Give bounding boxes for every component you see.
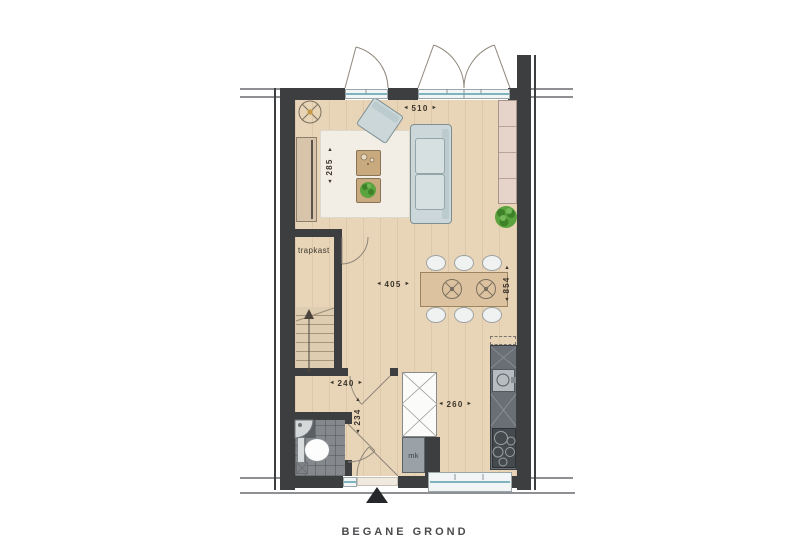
dimension-living-width: ◄ 510 ► (395, 105, 445, 113)
wall-left (280, 88, 295, 490)
arrow-left-icon: ◄ (376, 282, 381, 288)
door-arc (464, 45, 494, 88)
wall-top (508, 88, 531, 100)
floorplan-canvas: mk (0, 0, 810, 543)
arrow-down-icon: ▼ (355, 430, 360, 436)
dimension-hall-width: ◄ 240 ► (321, 380, 371, 388)
arrow-up-icon: ▲ (355, 398, 360, 404)
wall-hall (390, 368, 398, 376)
meter-cupboard-label: mk (408, 451, 419, 460)
dining-chair (426, 307, 446, 323)
entrance-threshold (357, 477, 398, 486)
sofa (410, 124, 452, 224)
arrow-right-icon: ► (431, 106, 436, 112)
dimension-interior-depth: ▲ 854 ▼ (500, 266, 514, 303)
window-glass-line (430, 481, 510, 483)
party-wall-line (531, 477, 573, 479)
wall-top (388, 88, 418, 100)
toilet-bowl (304, 438, 330, 462)
dimension-value: 405 (385, 281, 402, 289)
sofa-cushion (415, 174, 445, 210)
staircase (296, 307, 334, 368)
dining-chair (454, 255, 474, 271)
arrow-up-icon: ▲ (327, 148, 332, 154)
door-arc (434, 45, 464, 88)
arrow-right-icon: ► (404, 282, 409, 288)
door-leaf (494, 45, 510, 88)
arrow-up-icon: ▲ (504, 266, 509, 272)
upper-cabinet-outline (490, 336, 516, 345)
arrow-down-icon: ▼ (504, 298, 509, 304)
side-table (356, 178, 381, 203)
dining-chair (454, 307, 474, 323)
entrance-arrow-icon (366, 487, 388, 503)
arrow-left-icon: ◄ (438, 402, 443, 408)
party-wall-line (531, 96, 573, 98)
wall-outer-leaf (534, 55, 536, 490)
sofa-cushion (415, 138, 445, 174)
wall-bottom (280, 476, 343, 488)
dimension-value: 260 (447, 401, 464, 409)
party-wall-line (240, 492, 575, 494)
arrow-right-icon: ► (357, 381, 362, 387)
wall-top (280, 88, 345, 100)
kitchen-sink (492, 369, 515, 392)
sideboard-edge (311, 140, 313, 219)
party-wall-line (531, 88, 573, 90)
door-arc (356, 47, 388, 88)
dining-table (420, 272, 508, 307)
dimension-value: 510 (412, 105, 429, 113)
wall-meter-cupboard (425, 437, 440, 476)
floor-drain (296, 462, 308, 474)
tall-cabinet (498, 100, 517, 204)
arrow-right-icon: ► (466, 402, 471, 408)
meter-cupboard: mk (402, 437, 425, 473)
door-leaf (418, 45, 434, 88)
wall-stair-closet (334, 229, 342, 375)
wall-outer-leaf (274, 88, 276, 490)
plan-title: BEGANE GROND (0, 526, 810, 538)
dimension-kitchen-width: ◄ 260 ► (430, 401, 480, 409)
dimension-value: 240 (338, 380, 355, 388)
side-table (356, 150, 381, 176)
dining-chair (426, 255, 446, 271)
washbasin-unit (295, 420, 315, 438)
dimension-hall-depth: ▲ 234 ▼ (351, 398, 365, 435)
dimension-dining-width: ◄ 405 ► (368, 281, 418, 289)
arrow-left-icon: ◄ (329, 381, 334, 387)
dining-chair (482, 307, 502, 323)
dimension-value: 285 (319, 160, 341, 174)
window-glass-line (344, 481, 356, 483)
dimension-value: 854 (496, 278, 518, 292)
sideboard (296, 137, 317, 222)
wall-bottom (398, 476, 428, 488)
cooktop (492, 428, 516, 468)
arrow-left-icon: ◄ (403, 106, 408, 112)
wall-hall (295, 368, 348, 376)
stair-closet-label: trapkast (298, 246, 330, 255)
window-glass-line (346, 93, 387, 95)
wall-stair-closet (295, 229, 334, 237)
wall-toilet (345, 460, 352, 476)
arrow-down-icon: ▼ (327, 180, 332, 186)
door-leaf (345, 47, 356, 88)
wall-right (517, 55, 531, 490)
dimension-living-depth: ▲ 285 ▼ (322, 148, 338, 185)
dining-chair (482, 255, 502, 271)
wall-toilet (295, 412, 352, 420)
dimension-value: 234 (347, 410, 369, 424)
window-glass-line (419, 93, 509, 95)
